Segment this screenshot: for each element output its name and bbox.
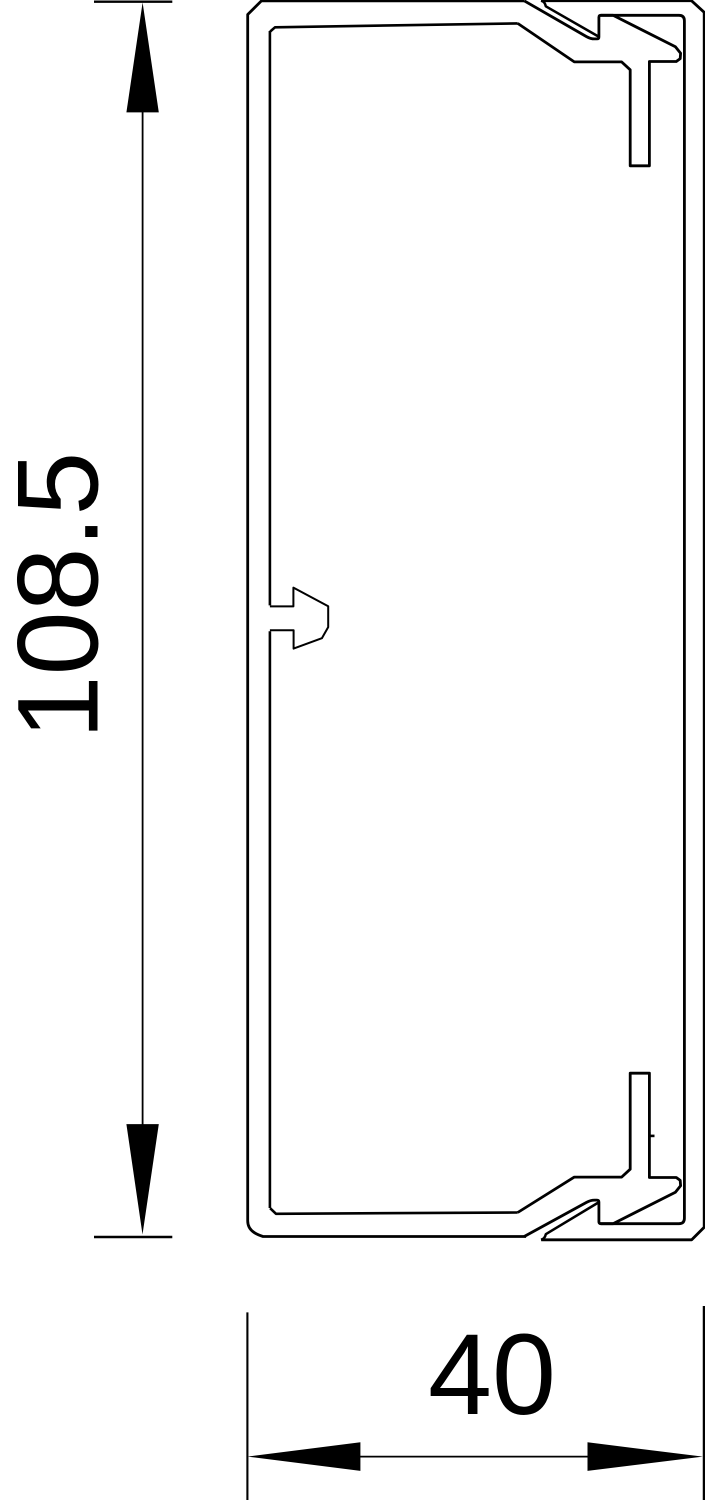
svg-text:40: 40 xyxy=(428,1311,556,1439)
svg-text:108.5: 108.5 xyxy=(0,452,123,740)
